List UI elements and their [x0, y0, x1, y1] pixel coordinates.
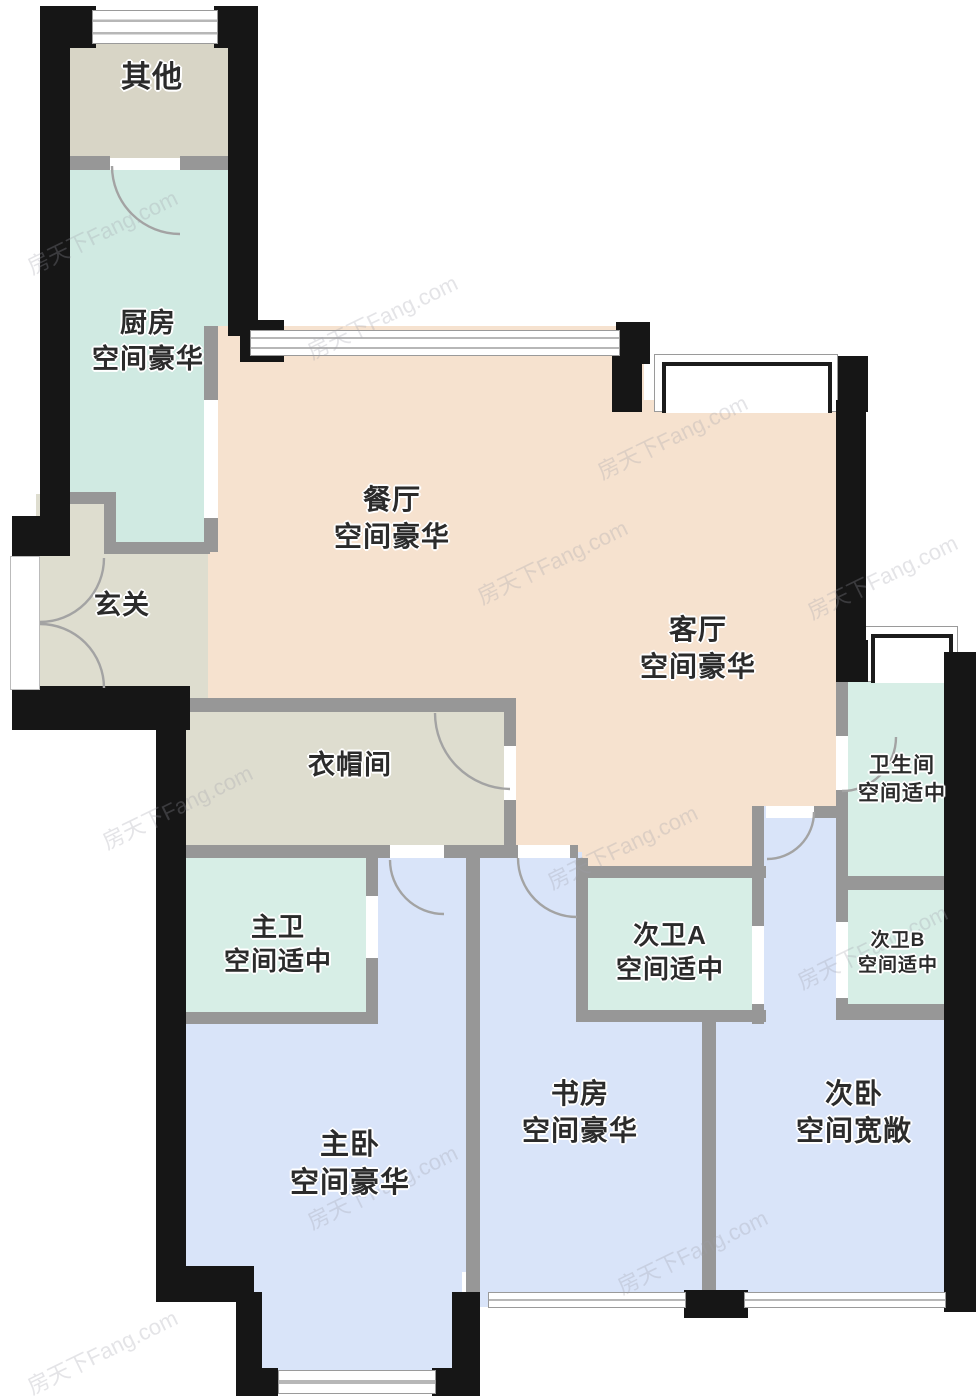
room-name: 厨房: [92, 306, 204, 342]
room-label-entry: 玄关: [94, 588, 150, 624]
room-name: 次卫A: [616, 918, 724, 952]
door-arc-kitchen: [112, 166, 180, 234]
room-desc: 空间适中: [858, 780, 946, 808]
room-label-living: 客厅 空间豪华: [640, 612, 756, 686]
room-label-bathroom: 卫生间 空间适中: [858, 752, 946, 807]
door-arc-entry-lower: [40, 624, 104, 688]
room-desc: 空间豪华: [92, 342, 204, 378]
room-name: 餐厅: [334, 482, 450, 519]
door-arc-master-bedroom: [390, 860, 444, 914]
room-name: 主卫: [224, 910, 332, 944]
door-arc-study: [518, 858, 577, 917]
room-name: 其他: [121, 58, 183, 98]
door-arc-cloakroom: [435, 713, 510, 789]
floor-plan: 房天下Fang.com 房天下Fang.com 房天下Fang.com 房天下F…: [0, 0, 980, 1400]
room-name: 书房: [522, 1076, 638, 1113]
room-name: 玄关: [94, 588, 150, 624]
room-name: 卫生间: [858, 752, 946, 780]
room-name: 主卧: [290, 1126, 410, 1164]
room-desc: 空间豪华: [290, 1164, 410, 1202]
door-arc-corridor: [767, 812, 814, 859]
room-label-second-bedroom: 次卧 空间宽敞: [796, 1076, 912, 1150]
room-name: 客厅: [640, 612, 756, 649]
room-name: 次卧: [796, 1076, 912, 1113]
room-label-bath-b: 次卫B 空间适中: [858, 928, 938, 978]
room-desc: 空间豪华: [522, 1113, 638, 1150]
room-name: 次卫B: [858, 928, 938, 953]
room-label-study: 书房 空间豪华: [522, 1076, 638, 1150]
room-desc: 空间宽敞: [796, 1113, 912, 1150]
room-label-kitchen: 厨房 空间豪华: [92, 306, 204, 377]
room-label-cloakroom: 衣帽间: [308, 748, 392, 784]
room-label-master-bedroom: 主卧 空间豪华: [290, 1126, 410, 1203]
door-arc-layer: [0, 0, 980, 1400]
room-desc: 空间适中: [858, 953, 938, 978]
room-desc: 空间适中: [616, 952, 724, 986]
room-label-other: 其他: [121, 58, 183, 98]
room-desc: 空间适中: [224, 944, 332, 978]
room-name: 衣帽间: [308, 748, 392, 784]
room-label-dining: 餐厅 空间豪华: [334, 482, 450, 556]
room-desc: 空间豪华: [640, 649, 756, 686]
room-desc: 空间豪华: [334, 519, 450, 556]
room-label-master-bath: 主卫 空间适中: [224, 910, 332, 979]
room-label-bath-a: 次卫A 空间适中: [616, 918, 724, 987]
